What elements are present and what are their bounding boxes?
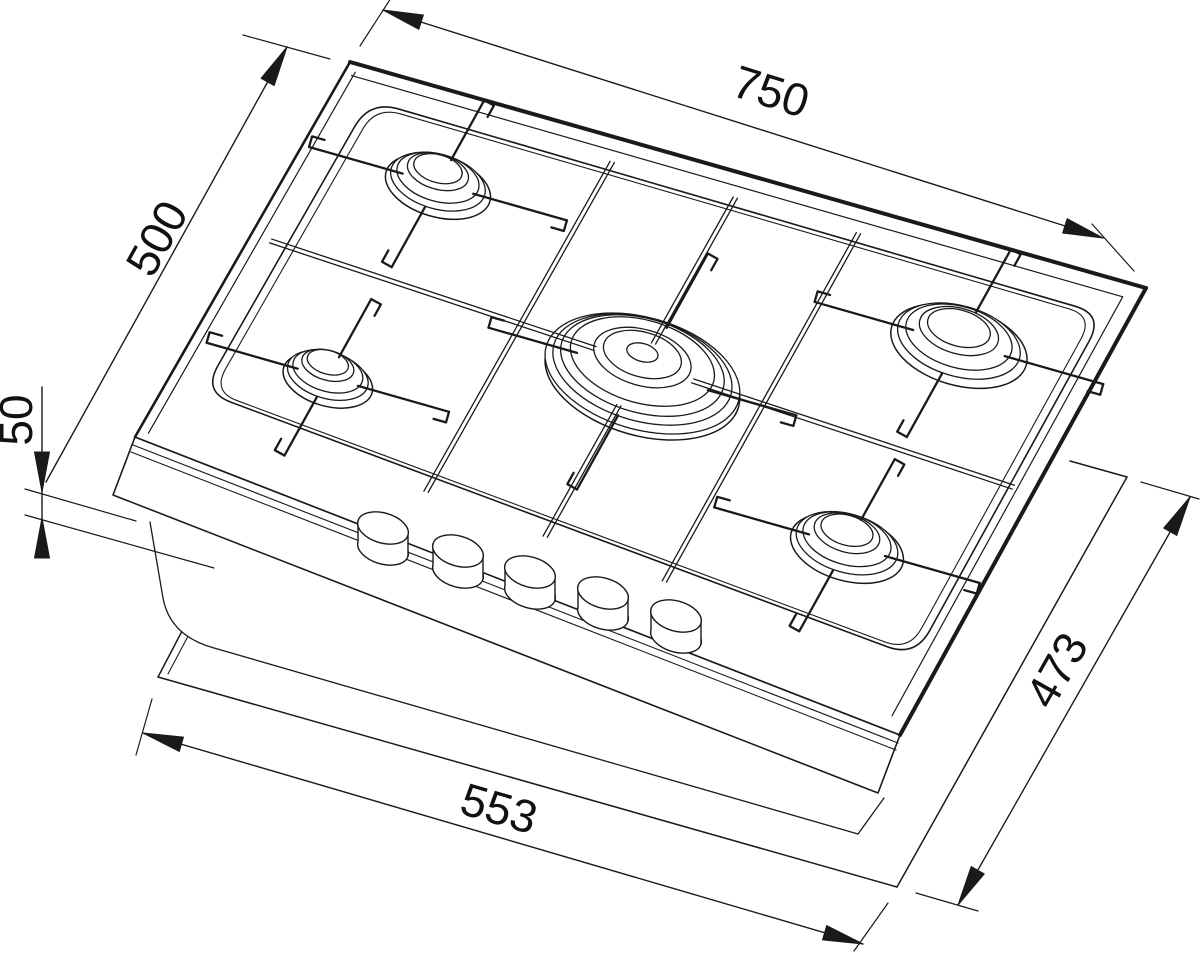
dimension-50-label: 50 [0,394,42,445]
technical-drawing: 75050050553473 [0,0,1200,955]
dimension-473-label: 473 [1015,624,1098,716]
dimension-500-label: 500 [115,192,198,284]
dimension-750-label: 750 [727,55,816,128]
hob-drawing-svg: 75050050553473 [0,0,1200,955]
